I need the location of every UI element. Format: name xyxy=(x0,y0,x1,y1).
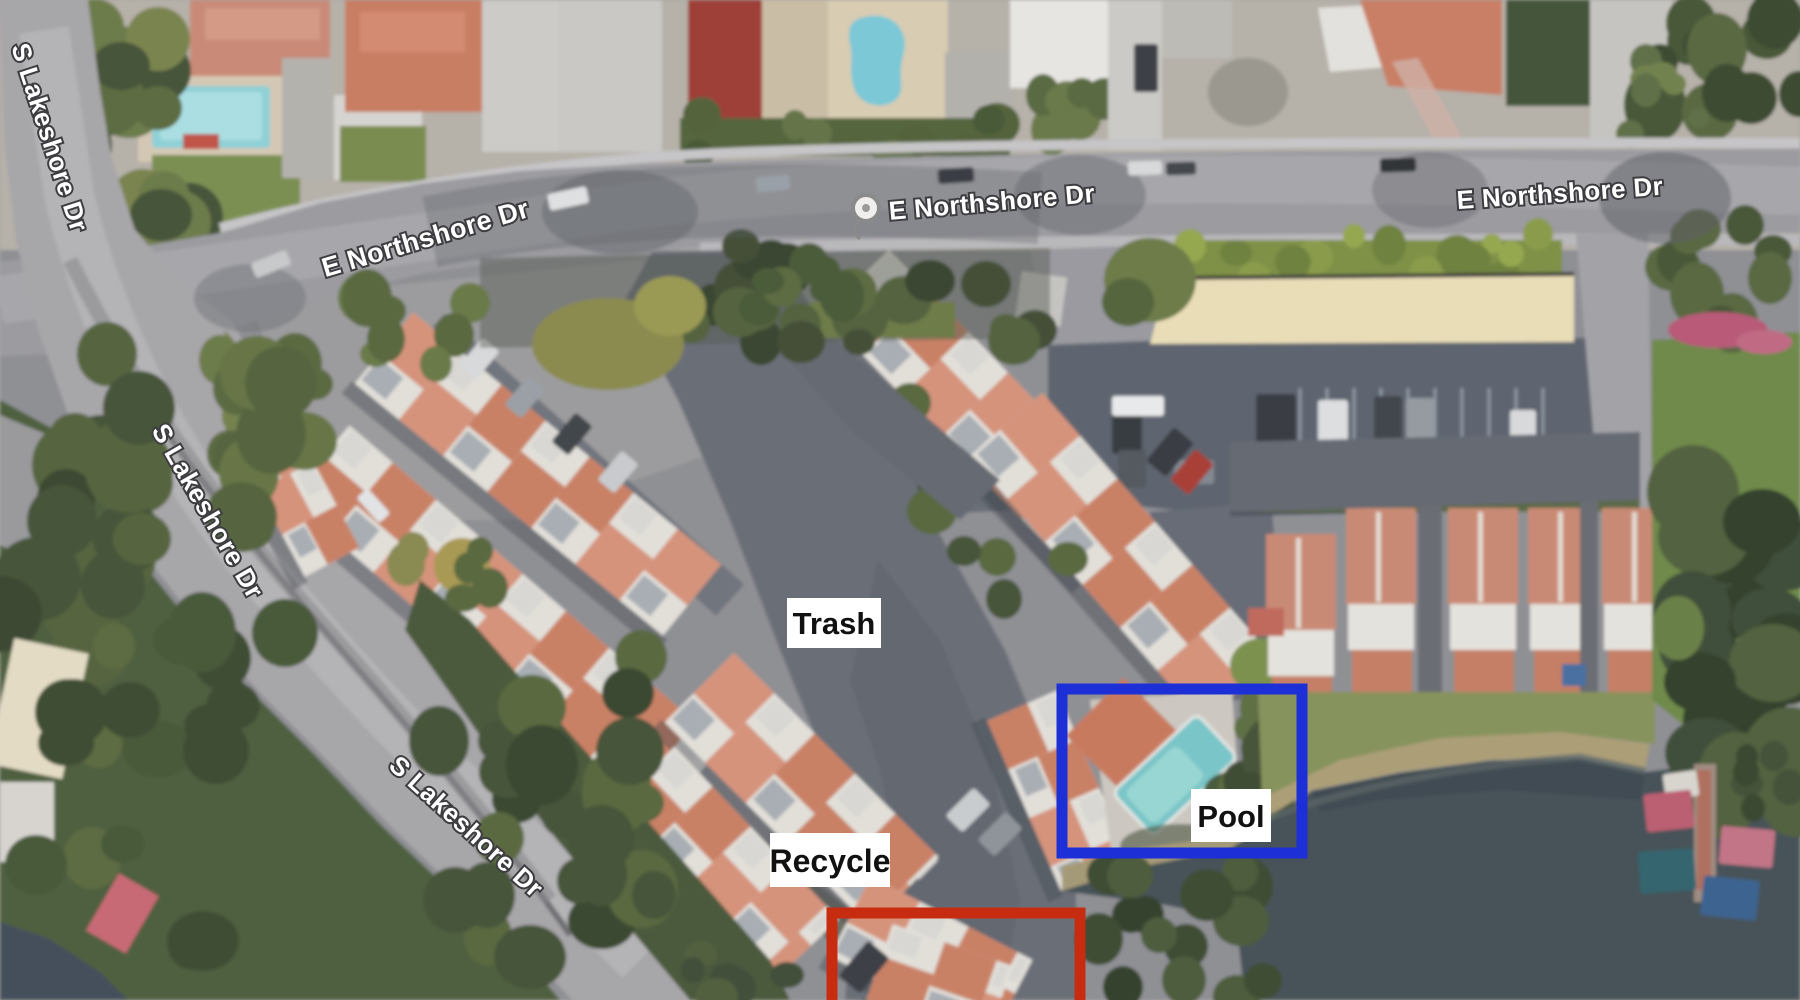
svg-text:Trash: Trash xyxy=(793,606,876,641)
svg-text:Recycle: Recycle xyxy=(770,843,891,879)
svg-text:Pool: Pool xyxy=(1197,799,1264,834)
